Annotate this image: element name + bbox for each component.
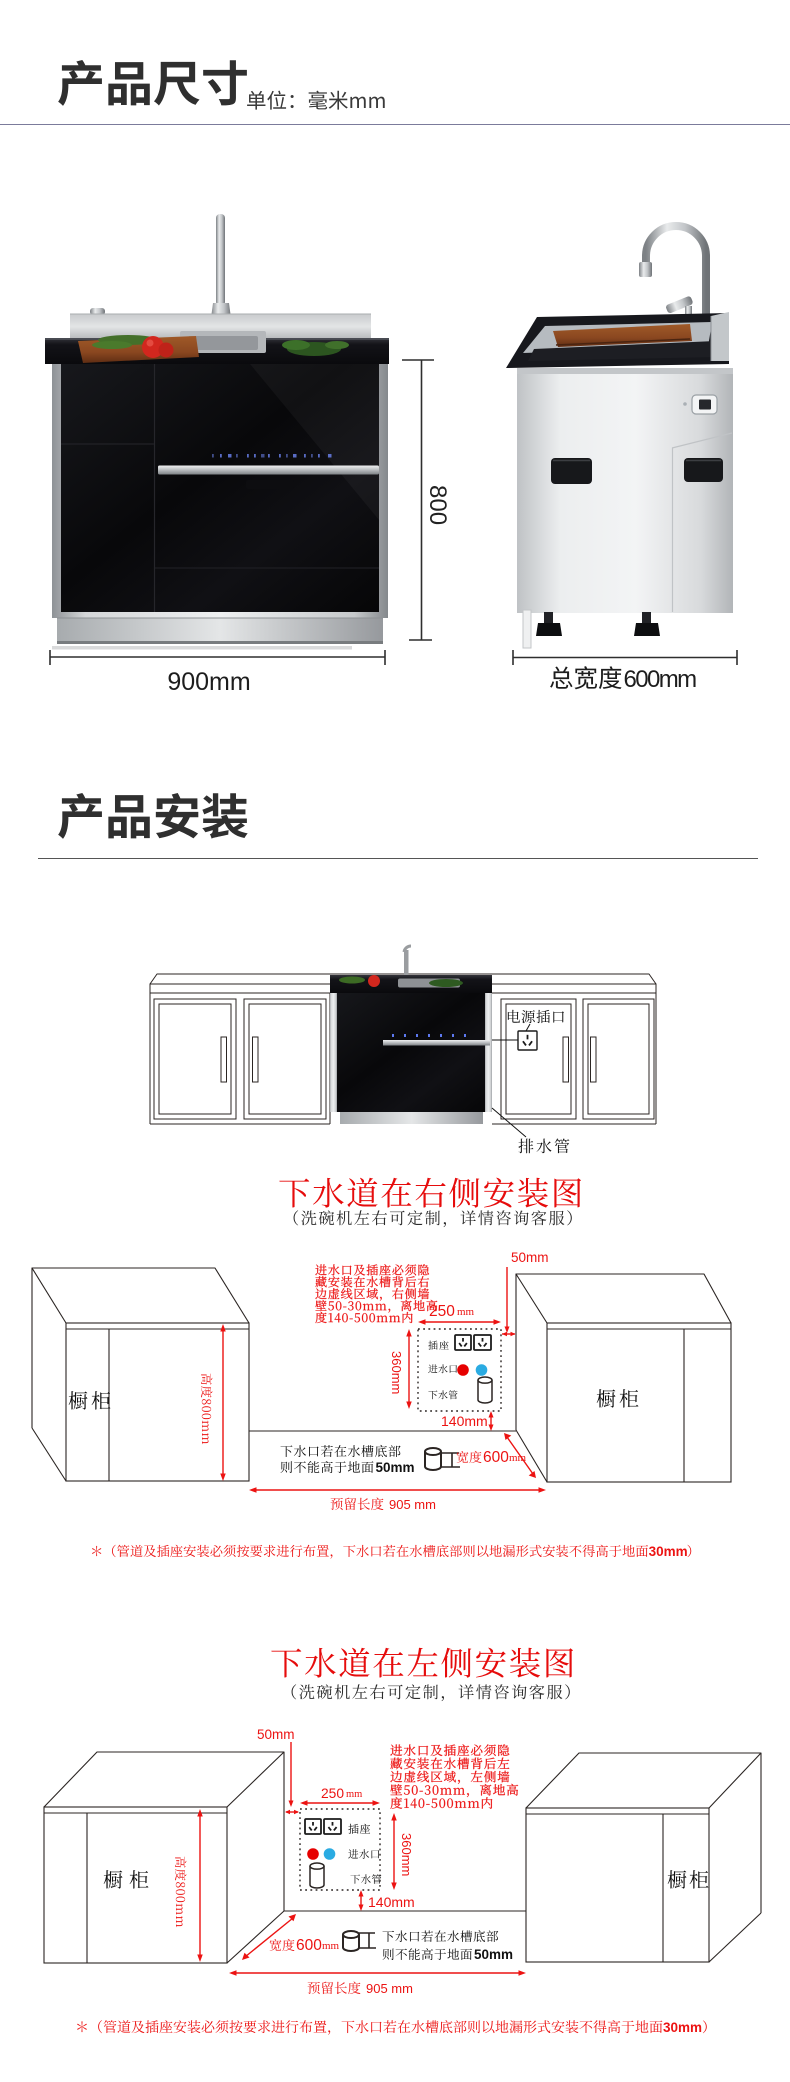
svg-text:250: 250 — [321, 1786, 344, 1801]
svg-text:800: 800 — [424, 485, 451, 525]
svg-text:250: 250 — [429, 1303, 455, 1320]
svg-text:50mm: 50mm — [511, 1250, 549, 1265]
svg-text:50mm: 50mm — [474, 1947, 513, 1962]
svg-text:600: 600 — [296, 1937, 322, 1954]
svg-text:50mm: 50mm — [257, 1727, 295, 1742]
svg-text:50mm: 50mm — [376, 1460, 415, 1475]
svg-text:360mm: 360mm — [399, 1833, 414, 1876]
svg-text:900mm: 900mm — [167, 668, 250, 696]
svg-text:mm: mm — [346, 1789, 362, 1800]
svg-text:mm: mm — [457, 1306, 475, 1318]
svg-text:360mm: 360mm — [389, 1351, 404, 1394]
svg-text:140mm: 140mm — [441, 1413, 488, 1429]
svg-text:30mm: 30mm — [649, 1544, 688, 1559]
svg-text:905 mm: 905 mm — [366, 1981, 413, 1996]
svg-text:mm: mm — [322, 1940, 340, 1952]
svg-text:905 mm: 905 mm — [389, 1497, 436, 1512]
svg-text:600mm: 600mm — [624, 666, 697, 693]
svg-text:600: 600 — [483, 1449, 509, 1466]
svg-text:140mm: 140mm — [368, 1894, 415, 1910]
svg-text:30mm: 30mm — [663, 2020, 702, 2035]
